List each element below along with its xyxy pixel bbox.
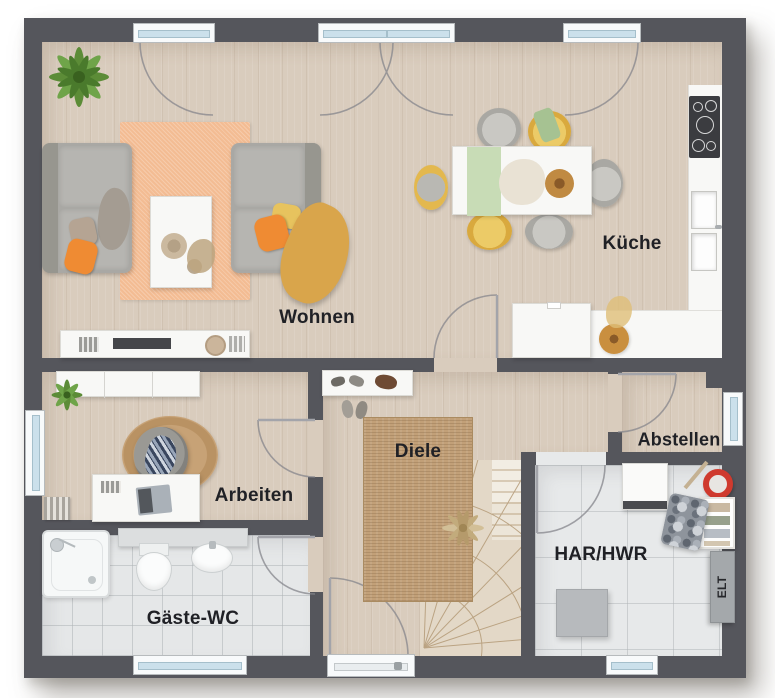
shelf-item [704,541,730,546]
window-glass [32,415,40,491]
cabinet-divider [152,372,153,398]
window [563,23,641,43]
door-swing-arc [565,42,638,115]
burner-icon [696,116,714,134]
door-handle-icon [394,662,402,670]
floor-plan: Wohnen Küche Arbeiten Diele Abstellen Gä… [24,18,746,678]
freezer-cabinet [512,303,591,358]
tv-icon [113,338,171,349]
books-icon [229,336,245,352]
shelf-item [704,529,730,538]
window [723,392,743,446]
window-glass [568,30,636,38]
kitchen-sink [689,189,720,273]
window [133,23,215,43]
potted-plant [50,378,84,412]
sink-basin [691,233,717,271]
mop-bucket [703,469,733,499]
shower [42,530,110,598]
burner-icon [692,139,705,152]
label-guest-wc: Gäste-WC [147,608,239,630]
shoe-shelf [322,370,413,396]
burner-icon [693,102,703,112]
door-swing-arc [258,537,315,594]
sofa-cushion [234,146,304,207]
cooktop [689,96,720,158]
label-office: Arbeiten [215,485,294,507]
dried-flowers [187,239,215,273]
toilet-bowl [136,552,172,591]
plan-contents: Wohnen Küche Arbeiten Diele Abstellen Gä… [24,18,746,678]
dining-table [452,146,592,215]
toilet [133,543,173,590]
window-glass [138,662,242,670]
door-swing-arc [537,465,605,533]
cabinet-divider [104,372,105,398]
door-swing-arc [434,295,497,358]
washbasin [191,543,233,573]
dining-chair [525,214,573,249]
decor-disc [205,335,226,356]
label-kitchen: Küche [602,233,661,255]
window [133,655,247,675]
window [606,655,658,675]
label-utility: HAR/HWR [554,544,647,566]
cabinet-handle [547,302,561,309]
label-electrical: ELT [715,576,729,598]
door-swing-arc [320,42,393,115]
books-icon [79,337,99,352]
window-terrace-door [318,23,455,43]
door-swing-arc [380,42,453,115]
faucet-icon [209,541,216,549]
dining-chair [414,165,448,210]
bag-icon [374,373,398,391]
washing-machine [622,463,668,510]
dining-chair [477,108,521,150]
burner-icon [706,141,716,151]
burner-icon [705,100,717,112]
window-glass [611,662,653,670]
canvas: Wohnen Küche Arbeiten Diele Abstellen Gä… [0,0,775,698]
drain-icon [88,576,96,584]
shoes-icon [348,374,366,389]
label-hallway: Diele [395,441,441,463]
window-glass [387,30,451,38]
label-living: Wohnen [279,307,355,329]
dried-plant [440,498,486,558]
laptop-icon [136,484,173,515]
dining-chair [467,212,512,250]
decor-tray [161,233,187,259]
desk [92,474,200,522]
door-swing-arc [618,374,676,432]
door-swing-arc [140,42,213,115]
label-storage: Abstellen [638,430,721,451]
entrance-door [327,654,415,677]
window-glass [138,30,210,38]
coffee-table [150,196,212,288]
faucet-icon [715,225,722,229]
washer-door-seal [623,501,667,509]
potted-plant [46,44,112,110]
storage-box [556,589,608,637]
sink-basin [691,191,717,229]
laptop-screen [138,488,153,513]
books-icon [101,481,121,493]
decor-bowl [545,169,574,198]
table-runner [467,147,501,216]
fruit-bowl [599,324,629,354]
window-glass [323,30,387,38]
tv-sideboard [60,330,250,358]
decor-flowers [499,159,545,205]
books-icon [44,497,70,520]
window [25,410,45,496]
sofa-backrest [42,143,58,273]
door-swing-arc [258,420,315,477]
shelf-item [704,516,730,525]
window-glass [730,397,738,441]
shoes-icon [330,375,346,387]
